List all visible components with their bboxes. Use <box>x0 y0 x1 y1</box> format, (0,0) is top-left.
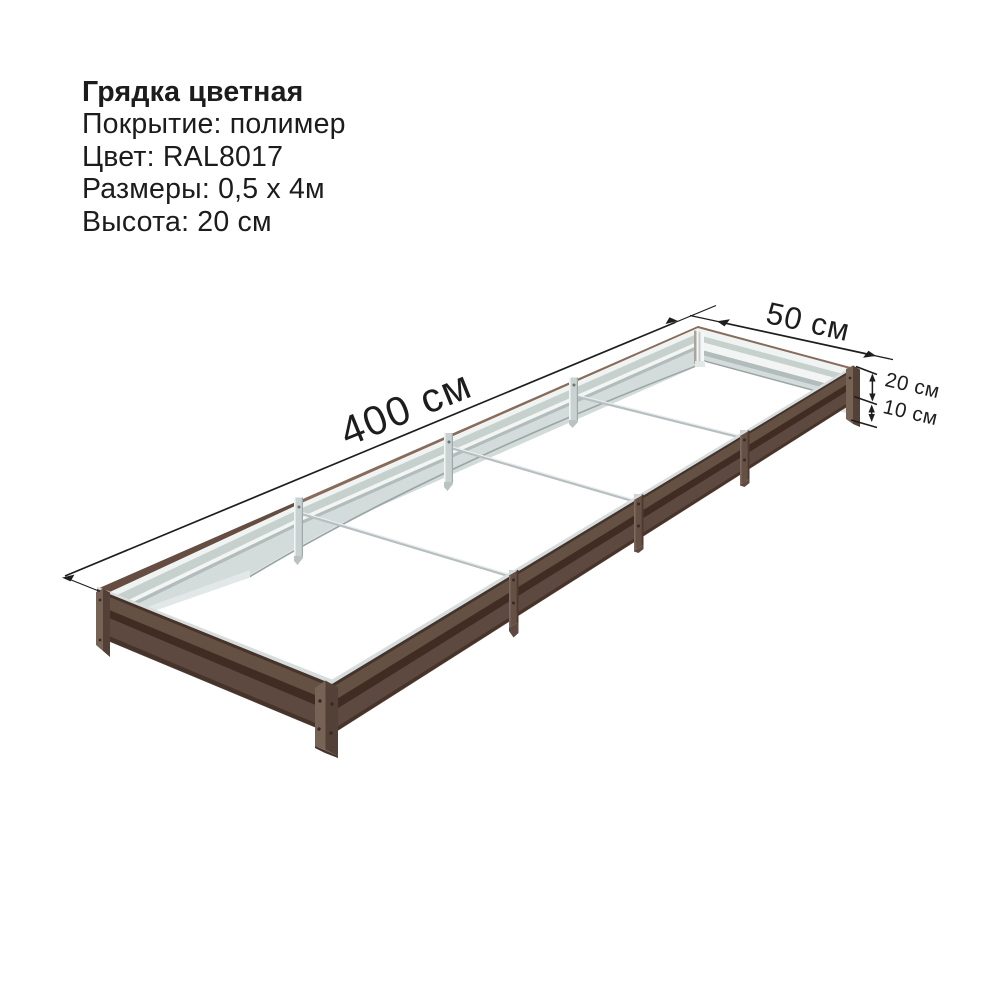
svg-text:50 см: 50 см <box>763 295 854 348</box>
